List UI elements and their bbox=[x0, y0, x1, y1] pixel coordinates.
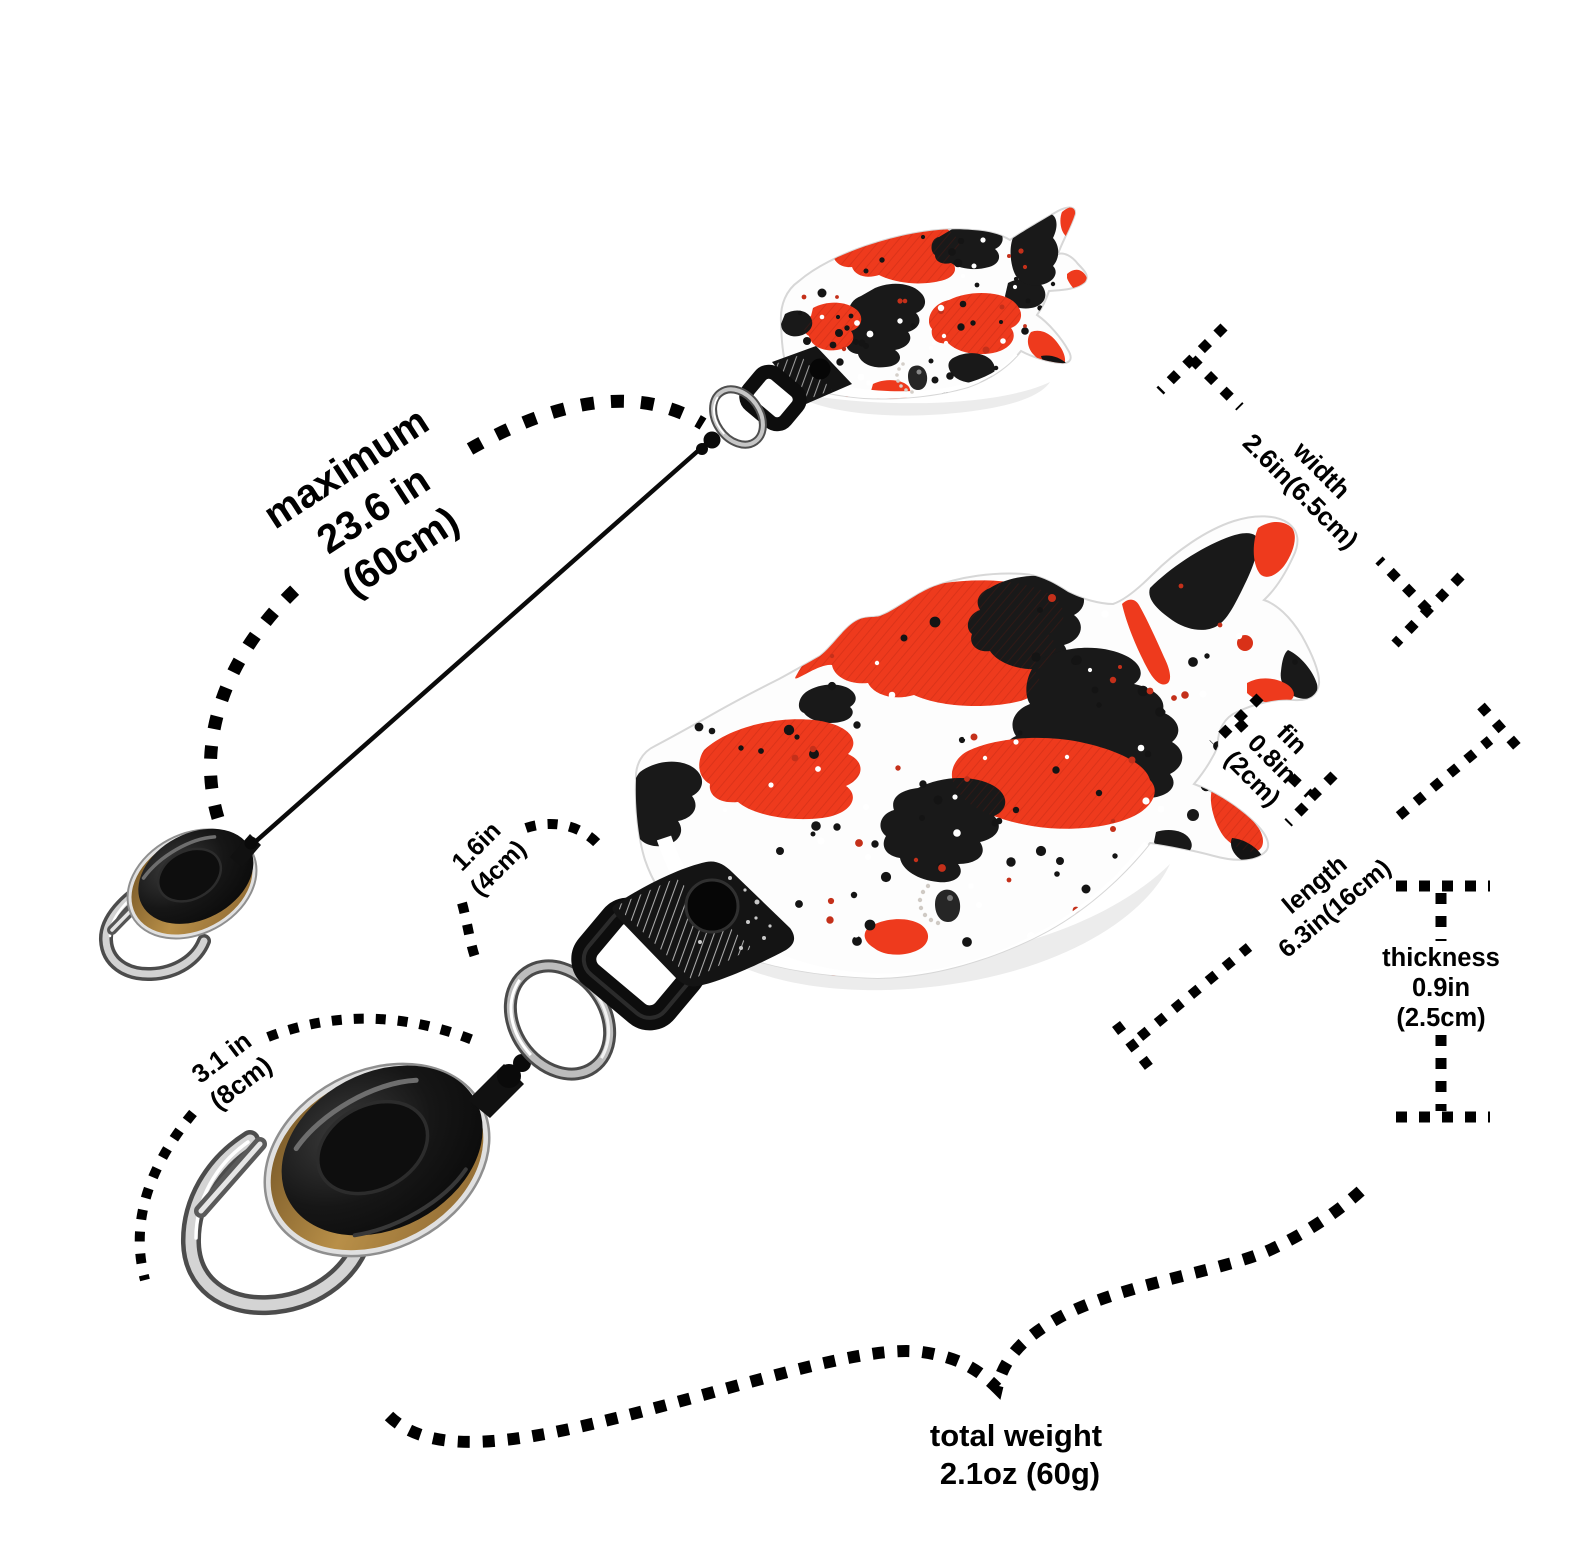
svg-text:(2.5cm): (2.5cm) bbox=[1396, 1004, 1485, 1032]
svg-text:2.1oz (60g): 2.1oz (60g) bbox=[940, 1456, 1100, 1491]
svg-text:thickness: thickness bbox=[1382, 944, 1500, 972]
svg-text:total weight: total weight bbox=[930, 1418, 1102, 1453]
svg-text:0.9in: 0.9in bbox=[1412, 974, 1470, 1002]
